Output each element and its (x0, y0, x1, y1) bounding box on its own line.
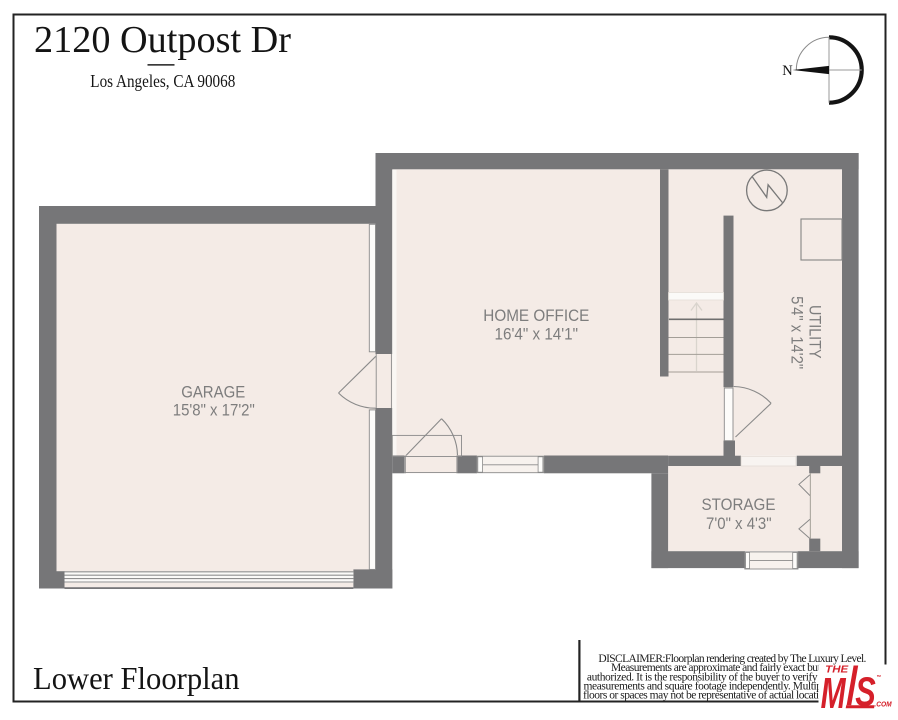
svg-text:.COM: .COM (874, 700, 892, 709)
svg-text:N: N (782, 63, 793, 79)
svg-text:GARAGE: GARAGE (181, 384, 245, 402)
svg-text:™: ™ (877, 675, 882, 682)
svg-text:M: M (821, 669, 847, 718)
svg-text:16'4" x 14'1": 16'4" x 14'1" (495, 324, 579, 343)
svg-text:Lower Floorplan: Lower Floorplan (33, 660, 240, 696)
svg-text:HOME OFFICE: HOME OFFICE (483, 306, 589, 325)
svg-text:Los Angeles, CA 90068: Los Angeles, CA 90068 (90, 71, 235, 91)
svg-text:5'4" x 14'2": 5'4" x 14'2" (787, 296, 805, 369)
svg-text:UTILITY: UTILITY (806, 305, 824, 359)
svg-text:15'8" x 17'2": 15'8" x 17'2" (173, 402, 255, 420)
svg-text:STORAGE: STORAGE (702, 495, 776, 514)
svg-text:2120 Outpost Dr: 2120 Outpost Dr (34, 19, 291, 61)
svg-text:7'0" x 4'3": 7'0" x 4'3" (706, 514, 772, 533)
svg-text:floors or spaces may not be re: floors or spaces may not be representati… (583, 690, 832, 702)
